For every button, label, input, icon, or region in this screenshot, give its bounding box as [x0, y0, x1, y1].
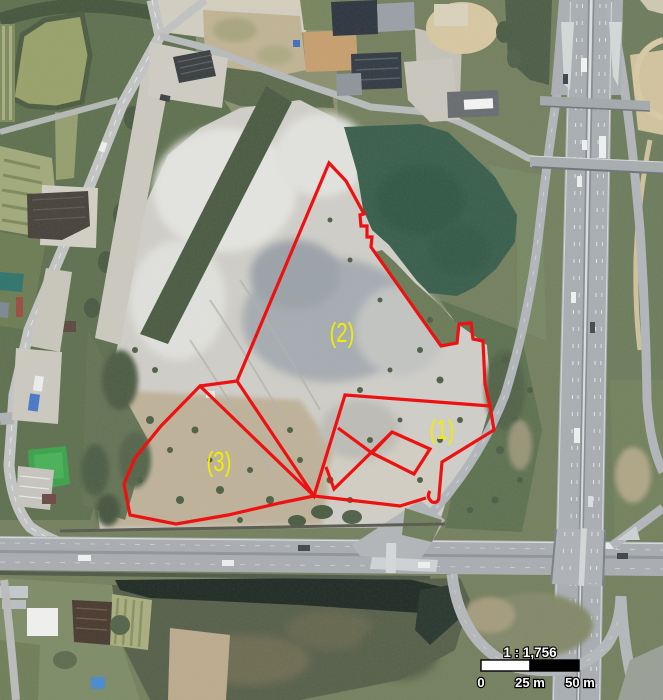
- svg-text:(1): (1): [430, 414, 455, 445]
- svg-text:50 m: 50 m: [565, 675, 595, 690]
- svg-text:(3): (3): [207, 446, 232, 477]
- svg-text:1 : 1,756: 1 : 1,756: [503, 645, 557, 660]
- svg-text:(2): (2): [330, 317, 355, 348]
- svg-text:0: 0: [477, 675, 484, 690]
- svg-text:25 m: 25 m: [515, 675, 545, 690]
